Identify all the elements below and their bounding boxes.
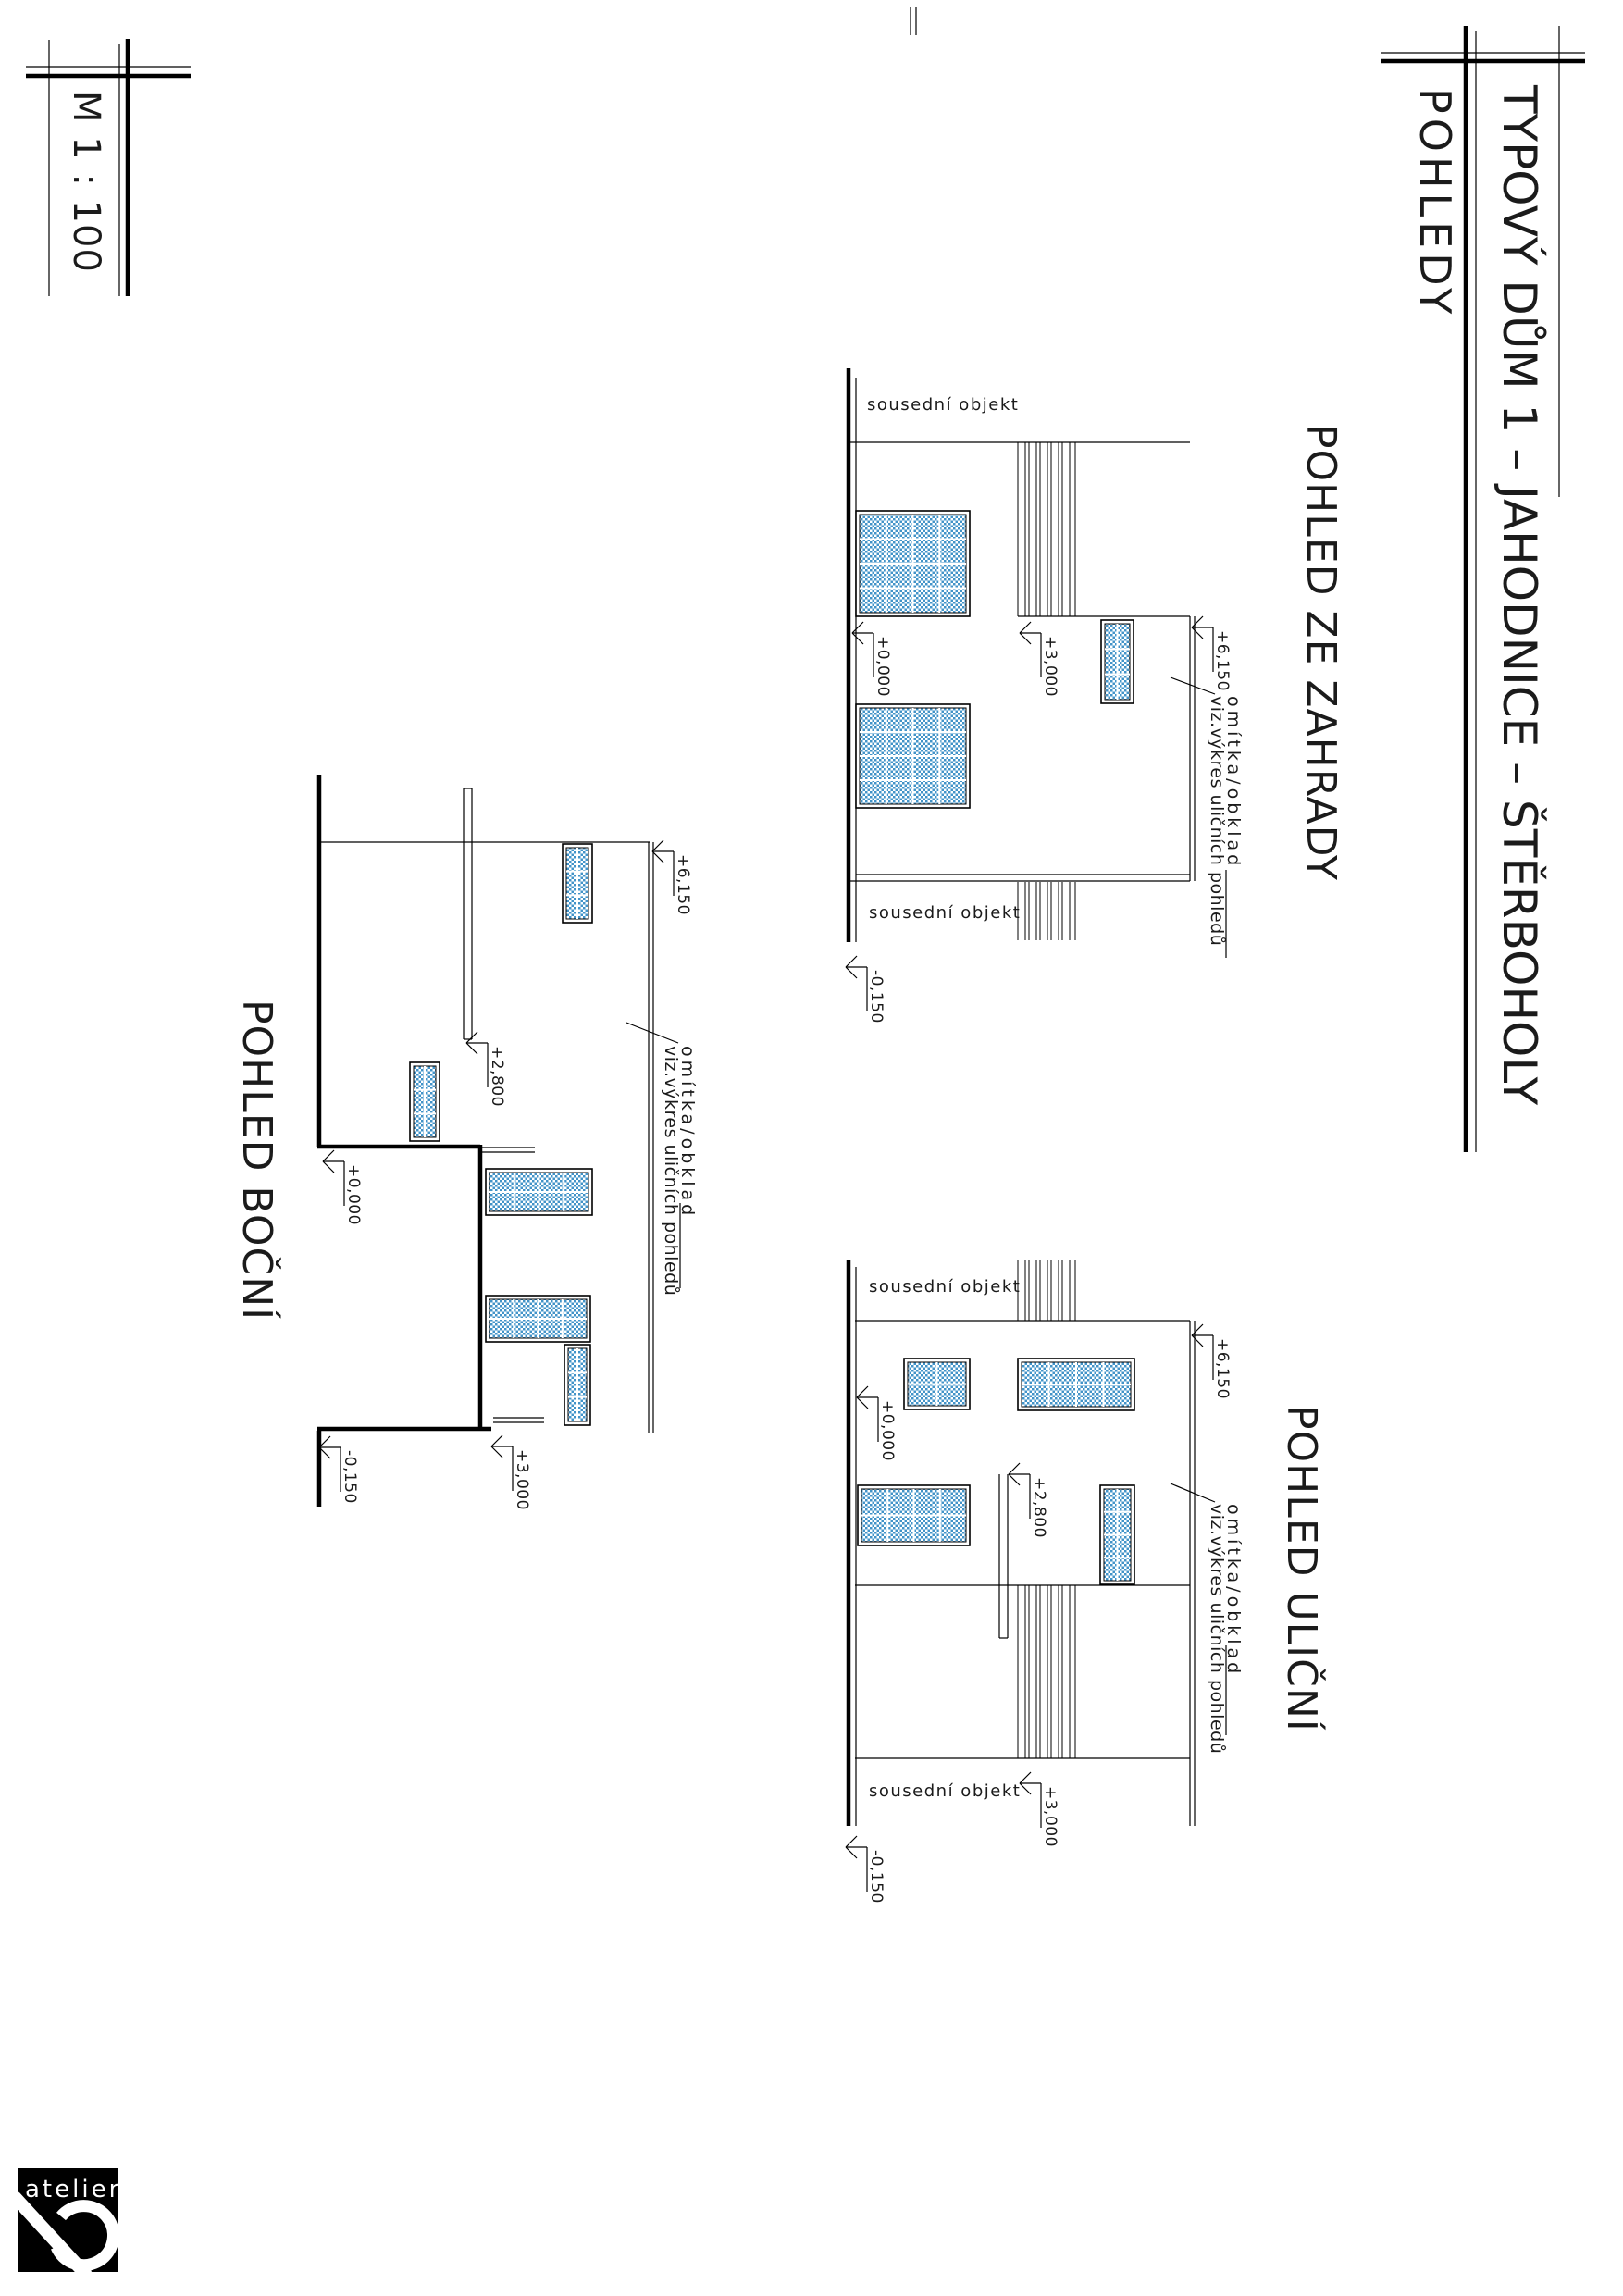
- level-value: +3,000: [513, 1449, 531, 1510]
- level-marker-arrow: [491, 1446, 502, 1458]
- note-line2: viz.výkres uličních pohledů: [1207, 1504, 1227, 1754]
- level-marker-arrow: [1009, 1463, 1020, 1474]
- leader-line: [1171, 1483, 1215, 1502]
- view-street-elevation: +0,000+2,800+6,150+3,000-0,150sousední o…: [846, 1260, 1327, 1904]
- view-title-street: POHLED ULIČNÍ: [1278, 1405, 1327, 1732]
- level-value: -0,150: [341, 1450, 359, 1504]
- level-marker-arrow: [846, 967, 857, 978]
- level-marker-arrow: [323, 1161, 334, 1173]
- elevations-drawing: TYPOVÝ DŮM 1 – JAHODNICE – ŠTĚRBOHOLY PO…: [0, 0, 1623, 2296]
- level-marker-arrow: [1192, 1335, 1203, 1347]
- neighbor-label: sousední objekt: [867, 395, 1019, 415]
- level-value: +0,000: [878, 1400, 897, 1461]
- level-value: -0,150: [867, 1850, 886, 1904]
- atelier-logo: atelier: [14, 2168, 121, 2276]
- level-marker-arrow: [491, 1435, 502, 1446]
- level-value: +2,800: [1030, 1477, 1048, 1538]
- level-value: +3,000: [1041, 1786, 1059, 1847]
- level-marker-arrow: [857, 1386, 868, 1397]
- scale-note: M 1 : 100: [65, 91, 107, 273]
- level-marker-arrow: [846, 956, 857, 967]
- leader-line: [626, 1023, 678, 1043]
- level-value: +3,000: [1041, 636, 1059, 697]
- level-value: +2,800: [488, 1046, 506, 1107]
- level-marker-arrow: [1020, 1772, 1031, 1783]
- level-value: +0,000: [344, 1164, 363, 1225]
- level-marker-arrow: [852, 633, 863, 644]
- level-marker-arrow: [652, 840, 663, 851]
- logo-text: atelier: [25, 2176, 121, 2203]
- neighbor-label: sousední objekt: [869, 1277, 1021, 1297]
- sheet-frame: [26, 7, 1585, 1152]
- sheet-title: TYPOVÝ DŮM 1 – JAHODNICE – ŠTĚRBOHOLY: [1493, 84, 1547, 1106]
- level-marker-arrow: [1020, 1783, 1031, 1794]
- level-marker-arrow: [857, 1397, 868, 1409]
- level-marker-arrow: [323, 1150, 334, 1161]
- level-marker-arrow: [846, 1847, 857, 1858]
- level-marker-arrow: [1192, 1324, 1203, 1335]
- level-marker-arrow: [846, 1836, 857, 1847]
- view-title-side: POHLED BOČNÍ: [233, 999, 282, 1321]
- note-line2: viz.výkres uličních pohledů: [661, 1046, 681, 1296]
- level-value: +6,150: [1213, 630, 1232, 691]
- level-value: -0,150: [867, 970, 886, 1024]
- level-value: +6,150: [674, 854, 692, 915]
- view-side-elevation: +0,000+2,800+6,150+3,000-0,150omítka/obk…: [233, 775, 698, 1510]
- level-marker-arrow: [466, 1043, 477, 1054]
- level-marker-arrow: [852, 622, 863, 633]
- view-garden-elevation: +0,000+3,000+6,150-0,150sousední objekts…: [846, 368, 1344, 1024]
- neighbor-label: sousední objekt: [869, 903, 1021, 923]
- level-marker-arrow: [1192, 616, 1203, 627]
- drawing-sheet: TYPOVÝ DŮM 1 – JAHODNICE – ŠTĚRBOHOLY PO…: [0, 0, 1623, 2296]
- level-value: +6,150: [1213, 1338, 1232, 1399]
- level-marker-arrow: [1020, 633, 1031, 644]
- level-value: +0,000: [873, 636, 892, 697]
- sheet-subtitle: POHLEDY: [1410, 88, 1460, 318]
- level-marker-arrow: [1192, 627, 1203, 639]
- level-marker-arrow: [1020, 622, 1031, 633]
- note-line2: viz.výkres uličních pohledů: [1207, 696, 1227, 946]
- neighbor-label: sousední objekt: [869, 1781, 1021, 1801]
- level-marker-arrow: [652, 851, 663, 863]
- view-title-garden: POHLED ZE ZAHRADY: [1297, 424, 1344, 881]
- level-marker-arrow: [1009, 1474, 1020, 1485]
- leader-line: [1171, 677, 1215, 694]
